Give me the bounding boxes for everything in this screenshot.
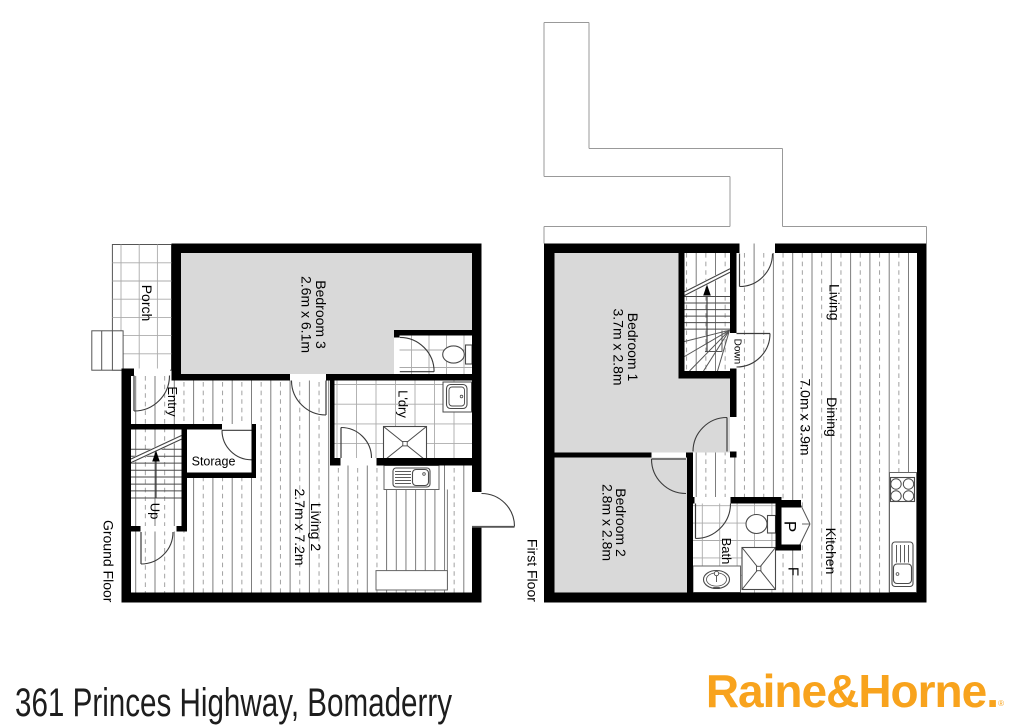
svg-text:First Floor: First Floor [525,539,541,602]
svg-text:Dining: Dining [824,397,840,437]
svg-text:Kitchen: Kitchen [823,528,839,575]
svg-text:P: P [781,521,800,532]
svg-text:2.6m x 6.1m: 2.6m x 6.1m [299,276,315,353]
svg-text:Raine&Horne.: Raine&Horne. [706,665,998,717]
svg-text:361 Princes Highway, Bomaderry: 361 Princes Highway, Bomaderry [15,681,452,725]
svg-text:7.0m x 3.9m: 7.0m x 3.9m [798,378,814,455]
svg-text:Bath: Bath [719,538,734,565]
svg-text:Living: Living [827,284,843,321]
svg-text:F: F [785,567,802,576]
svg-text:®: ® [998,699,1004,708]
svg-text:Storage: Storage [192,455,236,469]
svg-text:Down: Down [732,339,743,365]
svg-text:L'dry: L'dry [396,390,411,418]
svg-text:Up: Up [148,503,163,520]
svg-text:Living 2: Living 2 [308,503,324,551]
svg-text:2.7m x 7.2m: 2.7m x 7.2m [292,488,308,565]
svg-text:3.7m x 2.8m: 3.7m x 2.8m [611,308,627,385]
svg-text:2.8m x 2.8m: 2.8m x 2.8m [599,484,615,561]
svg-text:Entry: Entry [165,386,180,417]
svg-text:Porch: Porch [139,285,155,322]
svg-text:Ground Floor: Ground Floor [100,520,116,603]
